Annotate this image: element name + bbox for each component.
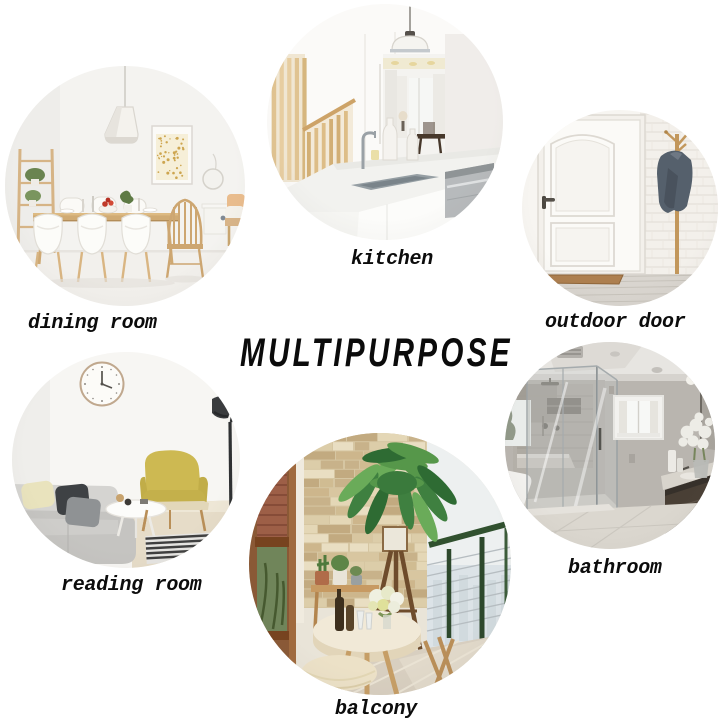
svg-text:MULTIPURPOSE: MULTIPURPOSE: [240, 331, 513, 375]
